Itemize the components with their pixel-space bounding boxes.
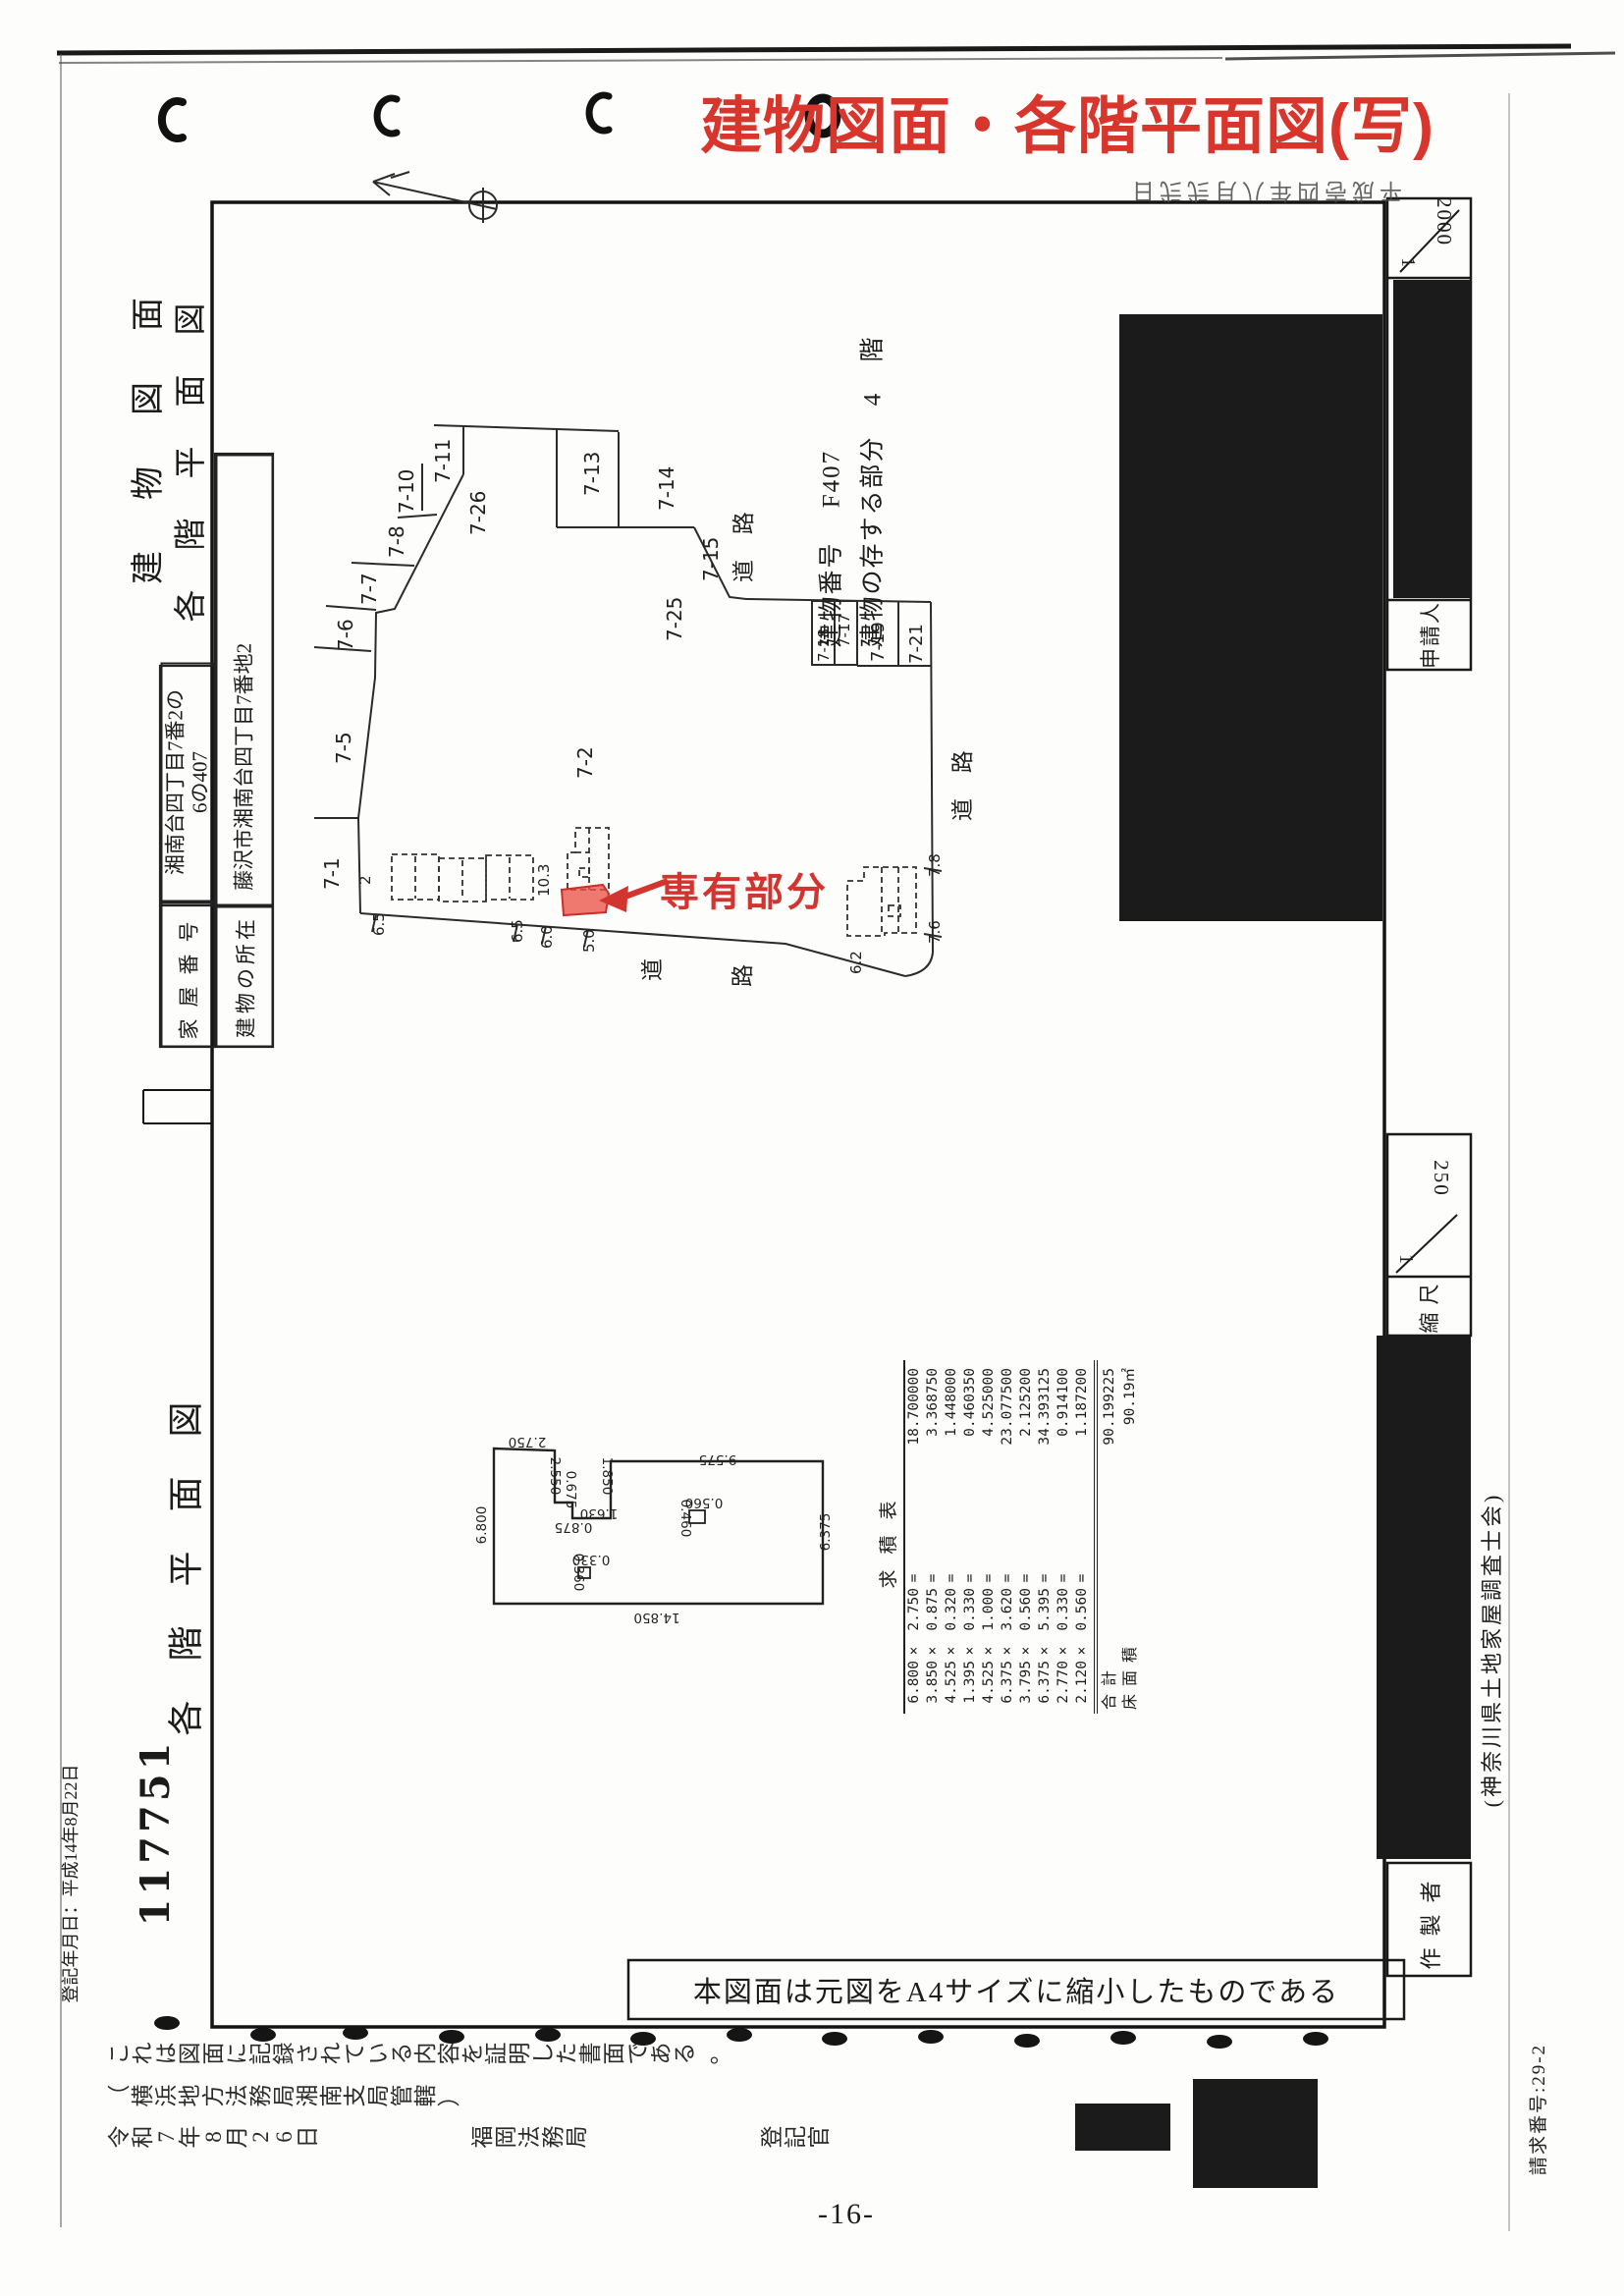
redaction-preparer bbox=[1377, 1336, 1471, 1859]
floor-dim: 6.800 bbox=[474, 1506, 490, 1545]
lot-label: 7-21 bbox=[906, 624, 927, 664]
location-row: 建物の所在 藤沢市湘南台四丁目7番地2 bbox=[215, 454, 273, 1047]
lot-label: 7-25 bbox=[663, 597, 686, 641]
house-number-value-line1: 湘南台四丁目7番2の bbox=[163, 689, 188, 875]
site-dimension-labels: 6.5 6.5 6.0 5.0 10.3 2 6.2 7.8 7.6 bbox=[356, 853, 944, 974]
factor-a: 6.375 bbox=[999, 1661, 1017, 1714]
factor-b: 0.320 bbox=[943, 1588, 961, 1641]
factor-a: 4.525 bbox=[980, 1661, 999, 1714]
floor-area-label: 床面積 bbox=[1120, 1594, 1141, 1714]
factor-b: 0.330 bbox=[961, 1588, 980, 1641]
floor-dim: 9.575 bbox=[699, 1451, 737, 1467]
equals-sign: = bbox=[1073, 1568, 1092, 1588]
equals-sign: = bbox=[1055, 1568, 1073, 1588]
floor-plan-dimensions: 2.750 9.575 2.550 0.675 1.850 1.630 0.87… bbox=[474, 1434, 834, 1625]
multiply-sign: × bbox=[1073, 1641, 1092, 1661]
site-dim: 5.0 bbox=[580, 929, 598, 953]
multiply-sign: × bbox=[961, 1641, 980, 1661]
section-title-building-drawing: 建物図面 bbox=[124, 246, 165, 585]
building-part-line: 建物の存する部分 4 階 bbox=[853, 300, 894, 648]
lot-label: 7-7 bbox=[357, 573, 381, 605]
lot-label: 7-26 bbox=[466, 491, 490, 535]
certification-line2: （横浜地方法務局湘南支局管轄） bbox=[108, 2083, 461, 2108]
site-dim: 10.3 bbox=[535, 864, 553, 897]
lot-label: 7-14 bbox=[655, 466, 678, 511]
area-calculation-table: 求積表 6.800×2.750=18.700000 3.850×0.875=3.… bbox=[872, 1360, 1131, 1714]
factor-a: 3.850 bbox=[924, 1661, 943, 1714]
floor-dim: 1.630 bbox=[580, 1505, 619, 1521]
factor-b: 2.750 bbox=[905, 1588, 924, 1641]
lot-label: 7-1 bbox=[320, 857, 344, 890]
site-dim: 6.5 bbox=[370, 912, 388, 936]
certification-line1: これは図面に記録されている内容を証明した書面である。 bbox=[108, 2041, 721, 2066]
multiply-sign: × bbox=[905, 1641, 924, 1661]
scale-site-denominator: 2000 bbox=[1433, 183, 1456, 261]
factor-a: 1.395 bbox=[961, 1661, 980, 1714]
registration-number-stamp: 117751 bbox=[133, 1749, 178, 1916]
floor-dim: 14.850 bbox=[633, 1610, 679, 1625]
floor-dim: 2.550 bbox=[547, 1457, 563, 1496]
total-value: 90.199225 bbox=[1100, 1360, 1120, 1594]
multiply-sign: × bbox=[980, 1641, 999, 1661]
factor-a: 6.375 bbox=[1036, 1661, 1055, 1714]
redaction-bottom-2 bbox=[1193, 2079, 1318, 2188]
floor-plan-outline bbox=[494, 1449, 823, 1604]
redaction-bottom-1 bbox=[1075, 2104, 1170, 2151]
exclusive-area-label: 専有部分 bbox=[660, 860, 829, 917]
scale-site-numerator: 1 bbox=[1397, 252, 1419, 274]
floor-area-value: 90.19㎡ bbox=[1120, 1360, 1141, 1594]
equals-sign: = bbox=[943, 1568, 961, 1588]
registration-date-note: 登記年月日：平成14年8月22日 bbox=[55, 1756, 84, 2011]
factor-b: 3.620 bbox=[999, 1588, 1017, 1641]
equals-sign: = bbox=[980, 1568, 999, 1588]
factor-b: 0.560 bbox=[1017, 1588, 1036, 1641]
multiply-sign: × bbox=[943, 1641, 961, 1661]
document-title: 建物図面・各階平面図(写) bbox=[700, 77, 1435, 166]
equals-sign: = bbox=[1036, 1568, 1055, 1588]
lot-label: 7-11 bbox=[431, 439, 455, 483]
factor-a: 4.525 bbox=[943, 1661, 961, 1714]
site-dim: 6.0 bbox=[538, 925, 556, 949]
product: 2.125200 bbox=[1017, 1360, 1036, 1568]
product: 23.077500 bbox=[999, 1360, 1017, 1568]
lot-label: 7-6 bbox=[334, 619, 357, 651]
factor-b: 1.000 bbox=[980, 1588, 999, 1641]
factor-b: 5.395 bbox=[1036, 1588, 1055, 1641]
building-number-value: F407 bbox=[819, 450, 845, 508]
certification-date: 令和7年8月26日 bbox=[108, 2124, 320, 2150]
request-number: 請求番号:29-2 bbox=[1524, 2021, 1549, 2198]
lot-label: 7-5 bbox=[332, 732, 355, 764]
lot-label: 7-15 bbox=[699, 537, 723, 581]
scanned-building-drawing-page: 7-10 7-11 7-26 7-8 7-7 7-6 7-13 7-14 7-1… bbox=[0, 0, 1624, 2296]
floor-dim: 1.850 bbox=[599, 1457, 615, 1496]
house-number-value: 湘南台四丁目7番2の 6の407 bbox=[160, 662, 215, 902]
multiply-sign: × bbox=[999, 1641, 1017, 1661]
building-part-unit: 階 bbox=[860, 335, 887, 361]
factor-a: 2.770 bbox=[1055, 1661, 1073, 1714]
area-table-row: 1.395×0.330=0.460350 bbox=[961, 1360, 980, 1714]
area-table-row: 2.770×0.330=0.914100 bbox=[1055, 1360, 1073, 1714]
product: 0.460350 bbox=[961, 1360, 980, 1568]
house-number-value-line2: 6の407 bbox=[188, 751, 212, 813]
scale-label: 縮尺 bbox=[1386, 1277, 1470, 1333]
road-label: 道 bbox=[640, 958, 665, 981]
section-title-floor-plan-bottom: 各階平面図 bbox=[161, 1363, 205, 1736]
area-table-row: 4.525×0.320=1.448000 bbox=[943, 1360, 961, 1714]
area-table-row: 6.800×2.750=18.700000 bbox=[905, 1360, 924, 1714]
redaction-large bbox=[1119, 314, 1382, 921]
lot-label: 7-8 bbox=[385, 525, 408, 558]
product: 1.448000 bbox=[943, 1360, 961, 1568]
certification-office: 福岡法務局 bbox=[471, 2124, 589, 2150]
building-number-label: 建物番号 bbox=[819, 541, 845, 647]
product: 34.393125 bbox=[1036, 1360, 1055, 1568]
area-table-totals: 合計90.199225 床面積90.19㎡ bbox=[1094, 1360, 1141, 1714]
preparer-label: 作製者 bbox=[1387, 1863, 1471, 1976]
exclusive-area-highlight bbox=[562, 881, 668, 915]
factor-a: 6.800 bbox=[905, 1661, 924, 1714]
equals-sign: = bbox=[1017, 1568, 1036, 1588]
road-label: 路 bbox=[731, 964, 755, 987]
product: 1.187200 bbox=[1073, 1360, 1092, 1568]
floor-dim: 0.875 bbox=[555, 1519, 593, 1535]
building-number-line: 建物番号 F407 bbox=[812, 300, 853, 648]
product: 18.700000 bbox=[905, 1360, 924, 1568]
location-value: 藤沢市湘南台四丁目7番地2 bbox=[215, 454, 273, 905]
area-table-row: 4.525×1.000=4.525000 bbox=[980, 1360, 999, 1714]
product: 3.368750 bbox=[924, 1360, 943, 1568]
equals-sign: = bbox=[961, 1568, 980, 1588]
multiply-sign: × bbox=[924, 1641, 943, 1661]
certification-officer: 登記官 bbox=[761, 2124, 832, 2150]
site-dim: 6.2 bbox=[847, 951, 865, 974]
equals-sign: = bbox=[905, 1568, 924, 1588]
subject-building-outline bbox=[568, 828, 609, 890]
building-part-label: 建物の存する部分 bbox=[860, 435, 887, 647]
house-number-label: 家屋番号 bbox=[160, 902, 215, 1047]
applicant-label: 申請人 bbox=[1387, 600, 1471, 670]
equals-sign: = bbox=[999, 1568, 1017, 1588]
house-number-row: 家屋番号 湘南台四丁目7番2の 6の407 bbox=[160, 454, 215, 1047]
site-dim: 2 bbox=[356, 875, 374, 885]
site-dim: 7.8 bbox=[926, 853, 944, 877]
redaction-applicant bbox=[1393, 280, 1470, 598]
site-dim: 6.5 bbox=[509, 919, 526, 943]
location-label: 建物の所在 bbox=[215, 905, 273, 1047]
reduction-note: 本図面は元図をA4サイズに縮小したものである bbox=[628, 1960, 1404, 2019]
scale-floor-numerator: 1 bbox=[1395, 1249, 1417, 1271]
equals-sign: = bbox=[924, 1568, 943, 1588]
page-number: -16- bbox=[818, 2198, 875, 2231]
multiply-sign: × bbox=[1036, 1641, 1055, 1661]
area-table-row: 3.850×0.875=3.368750 bbox=[924, 1360, 943, 1714]
factor-b: 0.560 bbox=[1073, 1588, 1092, 1641]
building-number-block: 建物番号 F407 建物の存する部分 4 階 bbox=[812, 300, 898, 648]
floor-dim: 0.360 bbox=[570, 1554, 586, 1592]
multiply-sign: × bbox=[1055, 1641, 1073, 1661]
road-label: 道 路 bbox=[731, 502, 756, 582]
factor-b: 0.330 bbox=[1055, 1588, 1073, 1641]
lot-label: 7-2 bbox=[573, 746, 597, 779]
lot-label: 7-13 bbox=[580, 452, 604, 496]
floor-dim: 0.675 bbox=[563, 1471, 578, 1509]
factor-a: 3.795 bbox=[1017, 1661, 1036, 1714]
multiply-sign: × bbox=[1017, 1641, 1036, 1661]
product: 0.914100 bbox=[1055, 1360, 1073, 1568]
floor-dim: 6.375 bbox=[818, 1513, 834, 1552]
area-table-row: 6.375×3.620=23.077500 bbox=[999, 1360, 1017, 1714]
received-date-stamp: 平成壱四年八月弐弐日 bbox=[1108, 177, 1402, 210]
dashed-building-outlines bbox=[392, 828, 916, 936]
building-part-value: 4 bbox=[860, 392, 887, 407]
total-label: 合計 bbox=[1100, 1594, 1120, 1714]
factor-b: 0.875 bbox=[924, 1588, 943, 1641]
road-label: 道 路 bbox=[950, 740, 975, 821]
preparer-association: (神奈川県土地家屋調査士会) bbox=[1476, 1442, 1505, 1858]
area-table-title: 求積表 bbox=[872, 1360, 905, 1714]
area-table-row: 6.375×5.395=34.393125 bbox=[1036, 1360, 1055, 1714]
area-table-row: 2.120×0.560=1.187200 bbox=[1073, 1360, 1092, 1714]
lot-label: 7-10 bbox=[395, 469, 418, 514]
product: 4.525000 bbox=[980, 1360, 999, 1568]
floor-dim: 2.750 bbox=[509, 1434, 547, 1449]
north-arrow bbox=[373, 172, 497, 223]
area-table-row: 3.795×0.560=2.125200 bbox=[1017, 1360, 1036, 1714]
site-dim: 7.6 bbox=[926, 920, 944, 944]
floor-dim: 0.560 bbox=[685, 1495, 724, 1510]
scale-floor-denominator: 250 bbox=[1430, 1147, 1453, 1210]
factor-a: 2.120 bbox=[1073, 1661, 1092, 1714]
header-table: 家屋番号 湘南台四丁目7番2の 6の407 建物の所在 藤沢市湘南台四丁目7番地… bbox=[160, 454, 273, 1047]
